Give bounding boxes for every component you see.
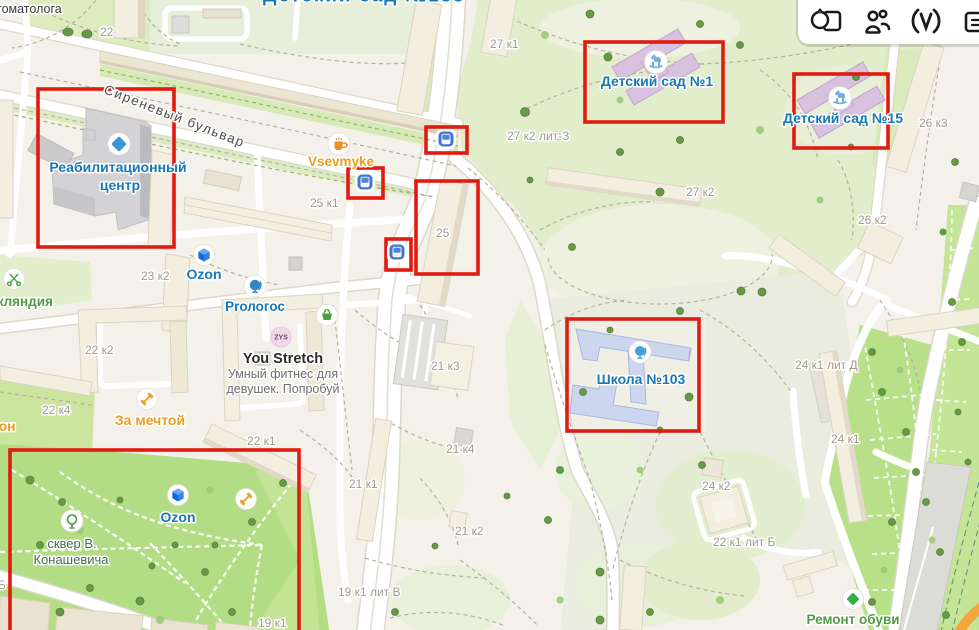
svg-text:22: 22 [100,25,114,39]
svg-text:24 к2: 24 к2 [702,479,731,493]
svg-text:21 к2: 21 к2 [455,524,484,538]
svg-text:девушек. Попробуй: девушек. Попробуй [227,382,340,396]
svg-text:25: 25 [436,226,450,240]
svg-text:You Stretch: You Stretch [243,351,323,367]
svg-text:21 к1: 21 к1 [349,477,378,491]
svg-text:21 к4: 21 к4 [446,442,475,456]
svg-text:Школа №103: Школа №103 [597,371,686,387]
svg-text:Б: Б [0,578,6,592]
svg-text:Детский сад №1: Детский сад №1 [601,73,713,89]
svg-text:22 к2: 22 к2 [85,343,114,357]
svg-text:24 к1: 24 к1 [831,432,860,446]
svg-text:26 к2: 26 к2 [858,213,887,227]
svg-text:Vsevmyke: Vsevmyke [308,154,375,169]
svg-text:27 к2 лит-З: 27 к2 лит-З [507,129,569,143]
svg-text:Детский сад №15: Детский сад №15 [783,110,903,126]
svg-text:24 к1 лит Д: 24 к1 лит Д [795,358,858,372]
svg-text:Ozon: Ozon [187,266,222,282]
svg-text:21 к3: 21 к3 [431,359,460,373]
svg-text:жляндия: жляндия [0,294,53,309]
svg-text:Prологос: Prологос [225,299,285,314]
svg-text:ΖYS: ΖYS [274,335,288,342]
svg-text:томатолога: томатолога [0,2,62,16]
svg-text:зон: зон [0,418,16,434]
svg-text:Ремонт обуви: Ремонт обуви [806,612,899,627]
svg-text:Конашевича: Конашевича [33,552,109,567]
svg-text:Умный фитнес для: Умный фитнес для [228,367,338,381]
svg-text:22 к1: 22 к1 [247,434,276,448]
svg-text:27 к1: 27 к1 [490,37,519,51]
svg-text:19 к1 лит В: 19 к1 лит В [338,585,400,599]
svg-text:22 к1 лит Б: 22 к1 лит Б [713,535,775,549]
svg-text:22 к4: 22 к4 [42,403,71,417]
svg-text:19 к1: 19 к1 [258,616,287,630]
svg-text:27 к2: 27 к2 [686,185,715,199]
svg-text:23 к2: 23 к2 [141,269,170,283]
svg-text:26 к3: 26 к3 [919,116,948,130]
svg-text:Детский сад №133: Детский сад №133 [263,0,465,7]
svg-text:Ozon: Ozon [161,509,196,525]
svg-text:центр: центр [100,177,140,193]
svg-text:сквер В.: сквер В. [47,536,96,551]
svg-text:За мечтой: За мечтой [115,412,185,428]
svg-text:Реабилитационный: Реабилитационный [49,159,186,175]
svg-text:25 к1: 25 к1 [310,196,339,210]
